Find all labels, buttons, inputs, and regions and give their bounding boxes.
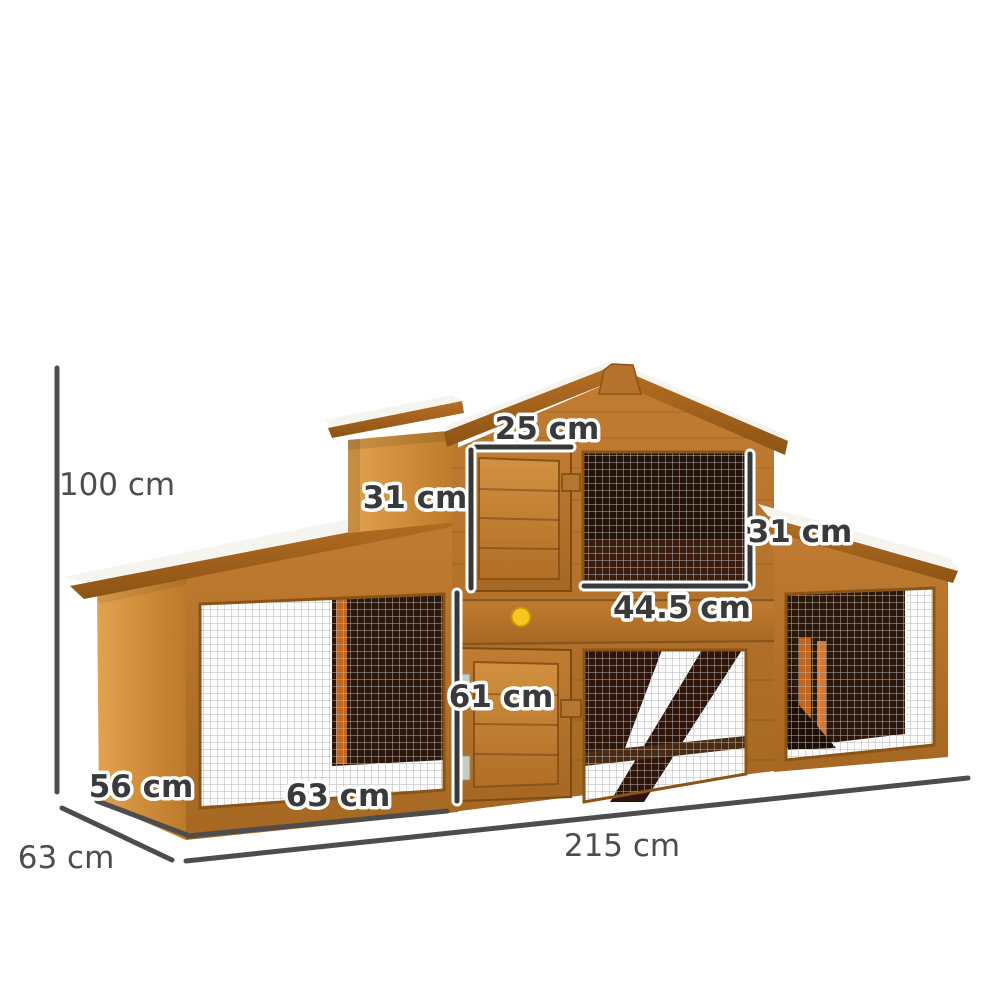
- label-upper-door-height: 31 cm: [363, 480, 468, 516]
- right-run-mesh: [786, 588, 934, 760]
- label-left-run-width: 63 cm: [286, 778, 391, 814]
- left-run-mesh: [200, 594, 444, 808]
- label-right-section-height: 31 cm: [748, 514, 853, 550]
- dormer-left-rail: [348, 439, 360, 533]
- lower-mesh-window: [584, 650, 746, 802]
- label-lower-front-height: 61 cm: [449, 679, 554, 715]
- hutch-illustration: 100 cm 25 cm 31 cm 31 cm 44.5 cm 61 cm 5…: [0, 0, 1000, 1000]
- roof-ridge-keystone: [599, 364, 641, 394]
- lower-door: [461, 648, 581, 801]
- upper-door-latch: [562, 474, 580, 491]
- label-hutch-depth: 56 cm: [89, 769, 194, 805]
- label-upper-run-width: 44.5 cm: [613, 590, 751, 626]
- lower-door-hinge-bottom: [462, 756, 470, 780]
- upper-door: [467, 446, 580, 591]
- label-overall-height: 100 cm: [59, 467, 175, 503]
- upper-mesh-window: [583, 452, 749, 588]
- product-dimension-diagram: 100 cm 25 cm 31 cm 31 cm 44.5 cm 61 cm 5…: [0, 0, 1000, 1000]
- label-base-depth: 63 cm: [18, 840, 115, 876]
- lower-door-latch: [561, 700, 581, 717]
- label-upper-door-width: 25 cm: [495, 411, 600, 447]
- yellow-knob: [512, 608, 531, 627]
- label-overall-length: 215 cm: [564, 828, 680, 864]
